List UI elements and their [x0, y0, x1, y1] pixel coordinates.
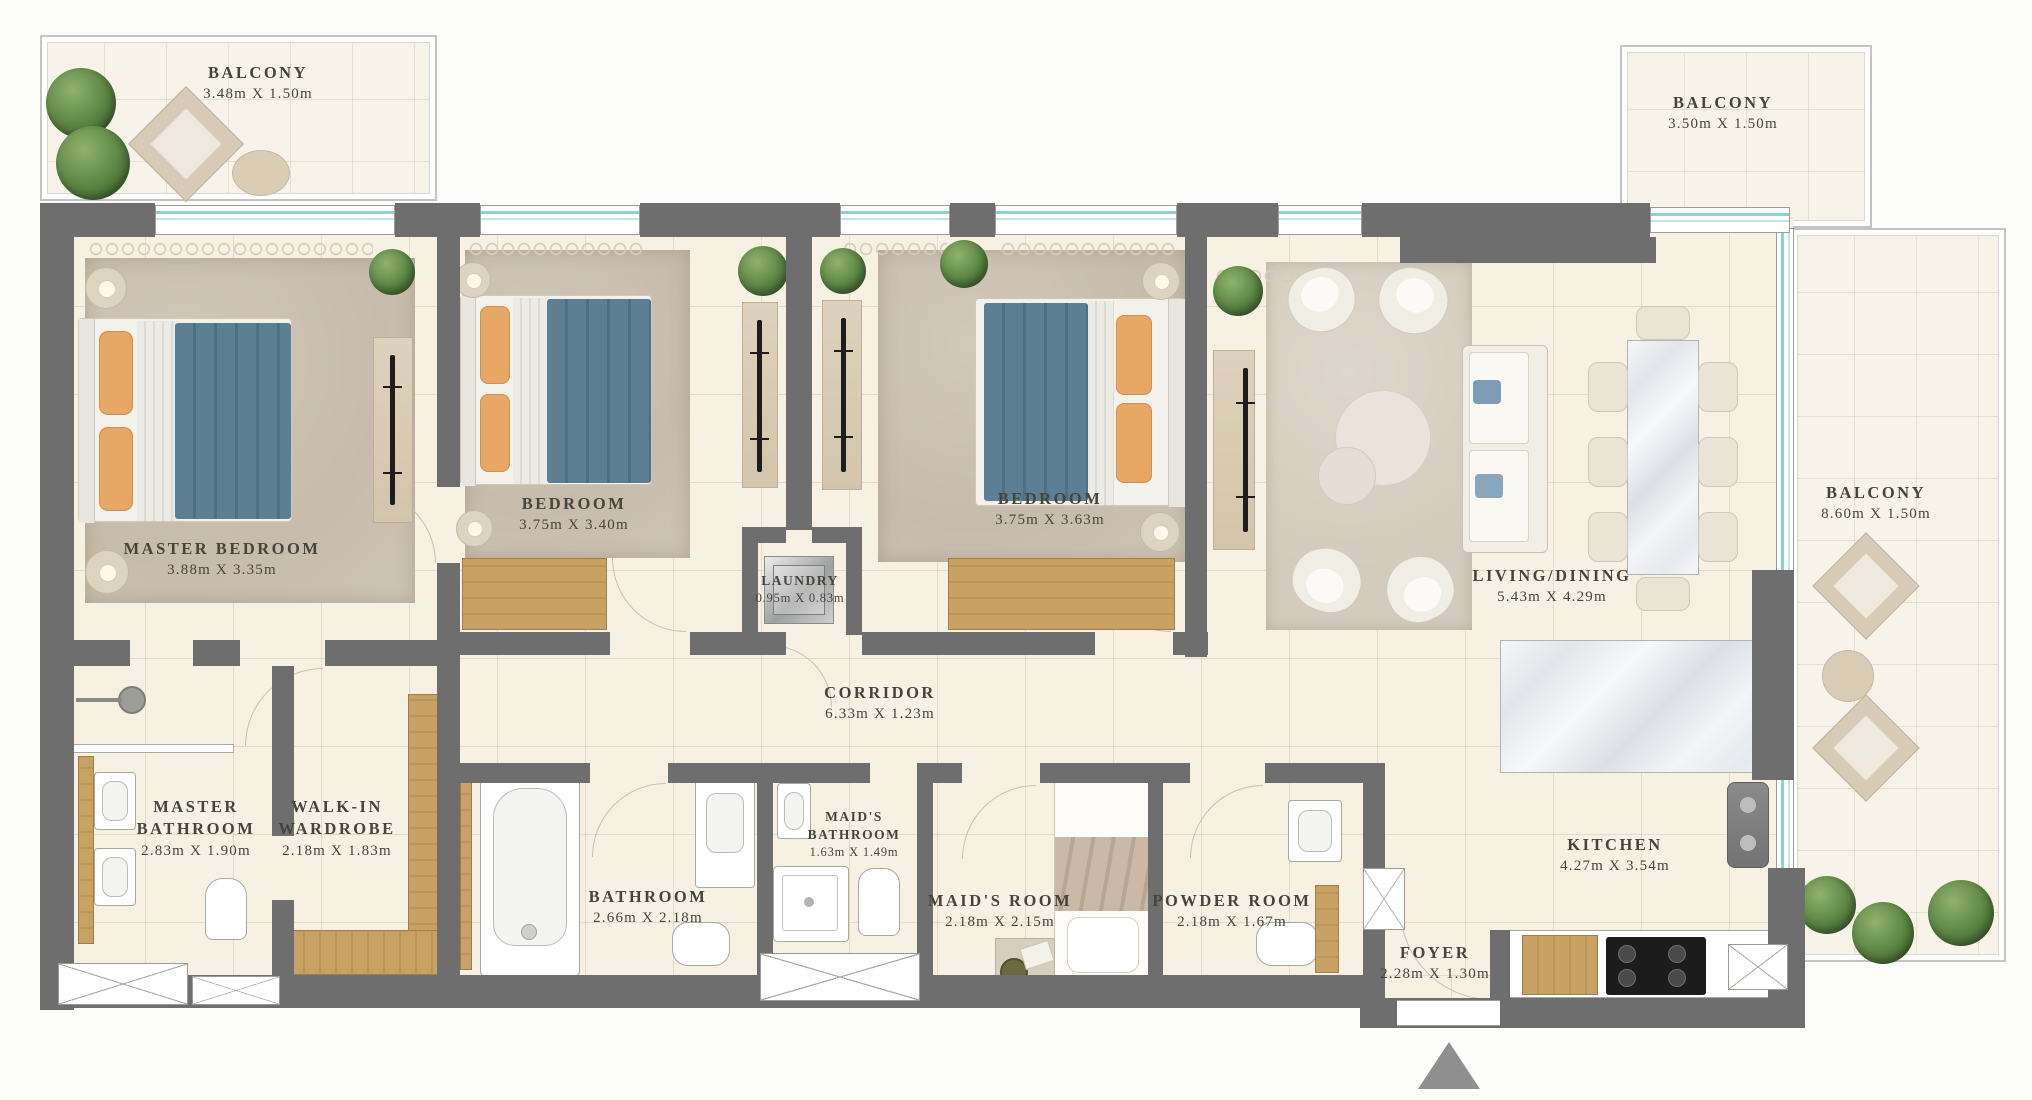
wall	[1163, 763, 1190, 783]
room-label-maids-room: MAID'S ROOM 2.18m X 2.15m	[900, 890, 1100, 933]
plant	[1213, 266, 1263, 316]
plant	[1852, 902, 1914, 964]
wall	[757, 763, 870, 783]
coffee-table	[1318, 447, 1376, 505]
window	[155, 205, 395, 235]
wall	[460, 632, 610, 655]
room-label-laundry: LAUNDRY 0.95m X 0.83m	[735, 572, 865, 607]
shower-head	[118, 686, 146, 714]
pillow	[99, 331, 133, 415]
plant	[738, 246, 788, 296]
window	[840, 205, 950, 235]
shower-tray	[773, 866, 849, 942]
wall	[786, 237, 812, 530]
sink	[695, 778, 755, 888]
fridge	[1727, 782, 1769, 868]
tv	[390, 355, 395, 505]
entrance-marker	[1418, 1042, 1480, 1089]
room-label-kitchen: KITCHEN 4.27m X 3.54m	[1515, 834, 1715, 877]
bed	[975, 298, 1185, 506]
wall	[193, 640, 240, 666]
wall	[1177, 203, 1278, 237]
wall	[690, 632, 786, 655]
room-label-foyer: FOYER 2.28m X 1.30m	[1355, 942, 1515, 985]
wall	[395, 203, 480, 237]
shaft	[1363, 868, 1405, 930]
shower-arm	[76, 698, 122, 702]
pillow	[1116, 403, 1152, 483]
side-table	[1822, 650, 1874, 702]
wall	[1040, 763, 1163, 783]
toilet	[858, 868, 900, 936]
wall	[40, 203, 155, 237]
wardrobe	[948, 558, 1175, 630]
shaft	[760, 953, 920, 1001]
tv-mount	[1236, 402, 1255, 404]
room-label-balcony-right: BALCONY 8.60m X 1.50m	[1776, 482, 1976, 525]
kitchen-island	[1500, 640, 1786, 773]
bed	[1054, 776, 1150, 980]
room-label-corridor: CORRIDOR 6.33m X 1.23m	[770, 682, 990, 725]
pillow	[480, 394, 510, 472]
dining-chair	[1698, 437, 1738, 487]
kitchen-cabinet	[1522, 935, 1598, 995]
wall	[742, 527, 786, 543]
room-label-balcony-top-left: BALCONY 3.48m X 1.50m	[158, 62, 358, 105]
tv-mount	[383, 386, 402, 388]
wall	[460, 763, 590, 783]
wall	[757, 763, 773, 975]
plant	[1928, 880, 1994, 946]
wardrobe	[462, 558, 607, 630]
plant	[940, 240, 988, 288]
curtain-decor	[468, 241, 643, 257]
room-label-living-dining: LIVING/DINING 5.43m X 4.29m	[1432, 565, 1672, 608]
sliding-door	[1650, 207, 1790, 233]
floor-plan: BALCONY 3.48m X 1.50m BALCONY 3.50m X 1.…	[0, 0, 2032, 1100]
wall	[40, 640, 130, 666]
toilet	[205, 878, 247, 940]
door-jamb	[1388, 1000, 1397, 1026]
wall	[640, 203, 840, 237]
room-label-bedroom-1: BEDROOM 3.75m X 3.40m	[474, 493, 674, 536]
wall	[272, 900, 294, 975]
nightstand	[455, 262, 491, 298]
pillow	[1116, 315, 1152, 395]
window	[995, 205, 1177, 235]
sofa	[1462, 345, 1548, 553]
plant	[1798, 876, 1856, 934]
tv-mount	[834, 350, 853, 352]
dining-chair	[1698, 362, 1738, 412]
shower-glass	[64, 744, 234, 753]
nightstand	[1142, 262, 1180, 300]
entry-door	[1395, 1000, 1503, 1026]
plant	[369, 249, 415, 295]
shaft	[192, 976, 280, 1005]
cushion	[1473, 380, 1501, 404]
room-label-bathroom: BATHROOM 2.66m X 2.18m	[558, 886, 738, 929]
room-label-balcony-top-right: BALCONY 3.50m X 1.50m	[1623, 92, 1823, 135]
master-bed	[78, 318, 292, 522]
tv	[757, 320, 762, 472]
bath-faucet	[521, 924, 537, 940]
balcony-top-right	[1620, 45, 1872, 228]
bed	[460, 295, 652, 485]
dining-chair	[1698, 512, 1738, 562]
window	[1278, 205, 1362, 235]
room-label-bedroom-2: BEDROOM 3.75m X 3.63m	[950, 488, 1150, 531]
dining-chair	[1588, 512, 1628, 562]
wall	[668, 763, 757, 783]
tv	[841, 318, 846, 472]
nightstand	[85, 267, 127, 309]
sink	[1288, 800, 1342, 862]
bathtub	[480, 775, 580, 977]
wall	[1363, 763, 1385, 868]
blanket	[175, 323, 291, 519]
tv-console	[1213, 350, 1255, 550]
wall	[325, 640, 460, 666]
wall	[812, 527, 862, 543]
room-label-master-bathroom: MASTER BATHROOM 2.83m X 1.90m	[126, 796, 266, 861]
wall	[1400, 237, 1656, 263]
curtain-decor	[1000, 241, 1178, 257]
room-label-master-bedroom: MASTER BEDROOM 3.88m X 3.35m	[92, 538, 352, 581]
dining-chair	[1636, 306, 1690, 340]
wall	[1265, 763, 1363, 783]
shaft	[58, 963, 188, 1005]
door-jamb	[1500, 1000, 1509, 1026]
vanity-cabinet	[78, 756, 94, 944]
wardrobe	[288, 930, 455, 975]
toilet	[672, 922, 730, 966]
wall	[1362, 203, 1650, 237]
tv-mount	[383, 472, 402, 474]
wall	[437, 563, 460, 995]
blanket	[547, 299, 651, 483]
room-label-maids-bathroom: MAID'S BATHROOM 1.63m X 1.49m	[789, 808, 919, 861]
wall	[950, 203, 995, 237]
room-label-walk-in-wardrobe: WALK-IN WARDROBE 2.18m X 1.83m	[272, 796, 402, 861]
tv-mount	[750, 352, 769, 354]
shaft	[1728, 944, 1788, 990]
window	[480, 205, 640, 235]
wall	[1148, 763, 1163, 975]
wall	[917, 763, 933, 975]
tv	[1243, 368, 1248, 532]
cabinet	[460, 778, 472, 970]
ottoman	[232, 150, 290, 196]
room-label-powder-room: POWDER ROOM 2.18m X 1.67m	[1132, 890, 1332, 933]
tv-mount	[1236, 496, 1255, 498]
tv-mount	[750, 438, 769, 440]
dining-chair	[1588, 362, 1628, 412]
blanket	[984, 303, 1088, 501]
dining-table	[1627, 340, 1699, 575]
wall	[1752, 570, 1794, 780]
pillow	[99, 427, 133, 511]
cushion	[1475, 474, 1503, 498]
stove	[1606, 937, 1706, 995]
plant	[820, 248, 866, 294]
wall	[1185, 237, 1207, 657]
wall	[917, 763, 962, 783]
curtain-decor	[88, 241, 373, 257]
wall	[437, 237, 460, 487]
tv-mount	[834, 436, 853, 438]
wall	[862, 632, 1095, 655]
dining-chair	[1588, 437, 1628, 487]
plant	[56, 126, 130, 200]
wall	[40, 203, 74, 1010]
pillow	[480, 306, 510, 384]
